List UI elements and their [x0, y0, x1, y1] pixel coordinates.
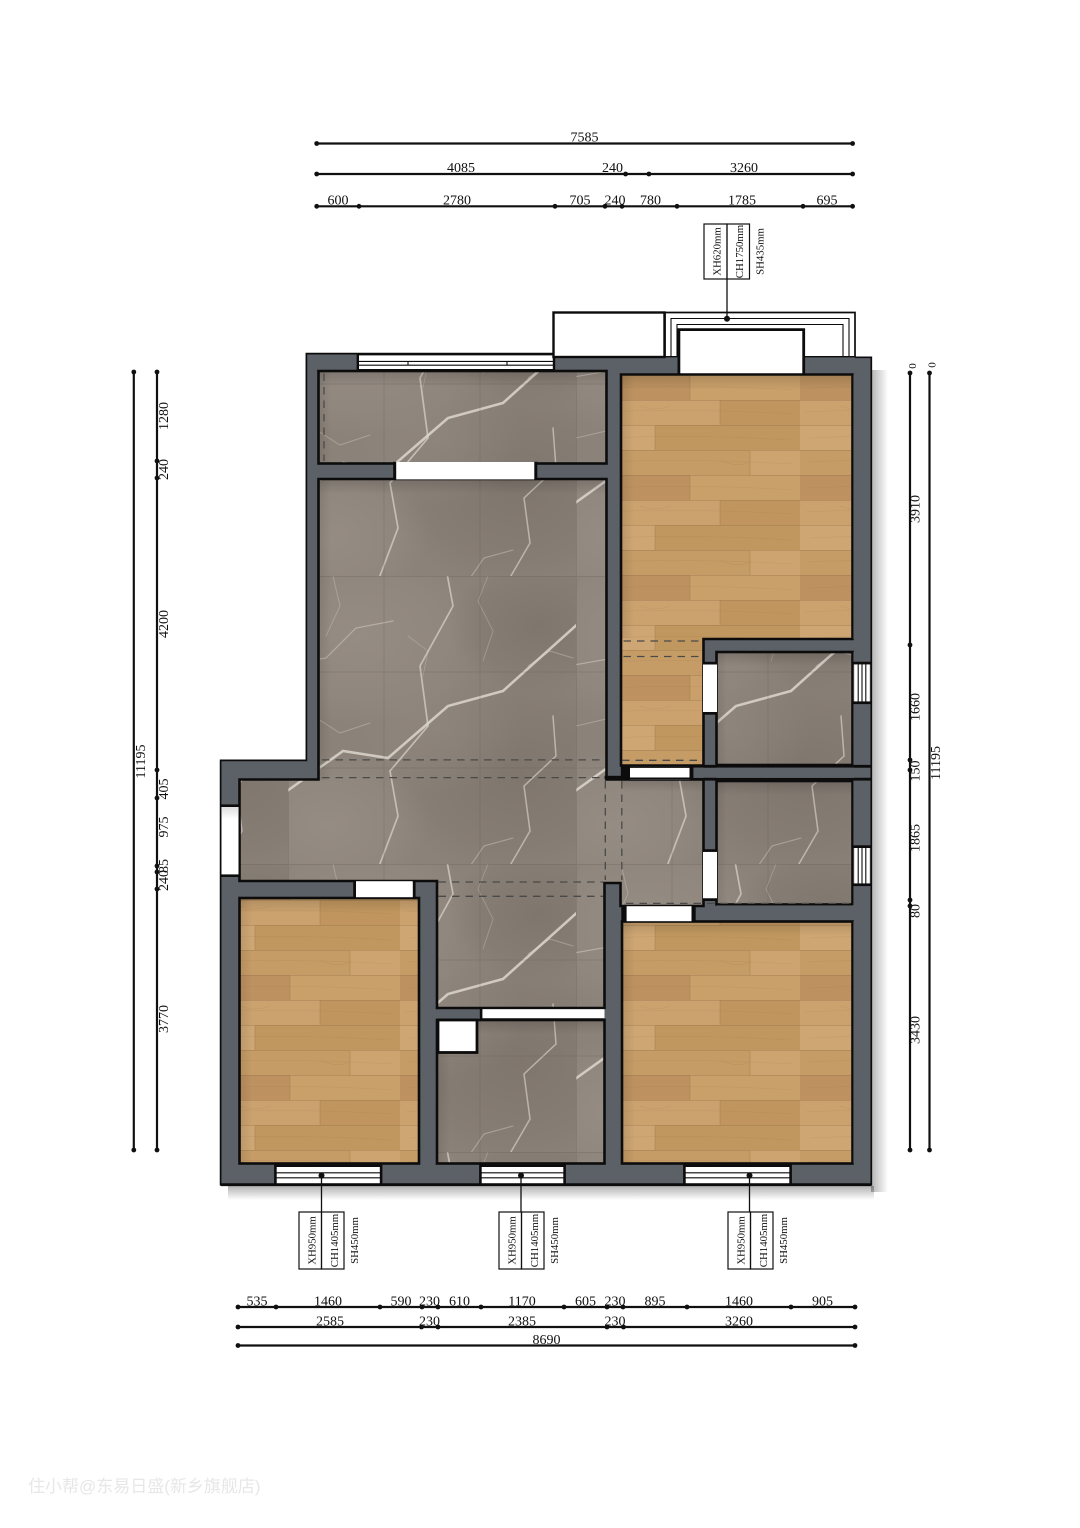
svg-text:SH435mm: SH435mm: [755, 228, 767, 275]
svg-text:3260: 3260: [725, 1315, 753, 1330]
svg-text:3430: 3430: [909, 1016, 924, 1044]
svg-text:80: 80: [909, 904, 924, 918]
svg-text:535: 535: [247, 1295, 268, 1310]
svg-text:780: 780: [640, 193, 661, 208]
svg-text:住小帮@东易日盛(新乡旗舰店): 住小帮@东易日盛(新乡旗舰店): [28, 1477, 261, 1496]
svg-text:2385: 2385: [508, 1315, 536, 1330]
svg-text:1170: 1170: [508, 1295, 535, 1310]
svg-text:XH950mm: XH950mm: [507, 1216, 519, 1265]
svg-text:8690: 8690: [533, 1333, 561, 1348]
svg-text:1660: 1660: [909, 693, 924, 721]
svg-text:240: 240: [602, 161, 623, 176]
svg-text:600: 600: [328, 193, 349, 208]
svg-text:905: 905: [812, 1295, 833, 1310]
svg-text:0: 0: [927, 362, 939, 368]
svg-text:230: 230: [605, 1315, 626, 1330]
svg-text:11195: 11195: [134, 745, 149, 779]
svg-text:SH450mm: SH450mm: [349, 1217, 361, 1264]
svg-text:230: 230: [605, 1295, 626, 1310]
svg-text:2780: 2780: [443, 193, 471, 208]
svg-text:11195: 11195: [929, 746, 944, 780]
svg-text:975: 975: [157, 817, 172, 838]
svg-text:2585: 2585: [316, 1315, 344, 1330]
svg-text:590: 590: [391, 1295, 412, 1310]
svg-text:7585: 7585: [571, 131, 599, 146]
svg-text:605: 605: [575, 1295, 596, 1310]
svg-text:CH1405mm: CH1405mm: [329, 1213, 341, 1267]
svg-text:230: 230: [419, 1295, 440, 1310]
svg-text:1460: 1460: [725, 1295, 753, 1310]
svg-text:CH1750mm: CH1750mm: [734, 224, 746, 278]
svg-text:240: 240: [157, 459, 172, 480]
svg-text:895: 895: [645, 1295, 666, 1310]
svg-text:150: 150: [909, 761, 924, 782]
svg-text:1785: 1785: [728, 193, 756, 208]
svg-text:1460: 1460: [314, 1295, 342, 1310]
svg-text:CH1405mm: CH1405mm: [758, 1213, 770, 1267]
svg-text:CH1405mm: CH1405mm: [529, 1213, 541, 1267]
svg-text:XH950mm: XH950mm: [736, 1216, 748, 1265]
svg-text:0: 0: [907, 363, 919, 369]
svg-text:1865: 1865: [909, 824, 924, 852]
svg-text:695: 695: [817, 193, 838, 208]
svg-text:405: 405: [157, 779, 172, 800]
svg-text:230: 230: [419, 1315, 440, 1330]
svg-text:XH620mm: XH620mm: [712, 227, 724, 276]
svg-text:4085: 4085: [447, 161, 475, 176]
svg-text:610: 610: [449, 1295, 470, 1310]
svg-text:3770: 3770: [157, 1005, 172, 1033]
svg-text:4200: 4200: [157, 610, 172, 638]
svg-text:240: 240: [157, 870, 172, 891]
svg-text:1280: 1280: [157, 402, 172, 430]
svg-text:240: 240: [605, 193, 626, 208]
svg-text:705: 705: [570, 193, 591, 208]
svg-text:SH450mm: SH450mm: [549, 1217, 561, 1264]
svg-text:XH950mm: XH950mm: [307, 1216, 319, 1265]
svg-text:SH450mm: SH450mm: [778, 1217, 790, 1264]
svg-text:3910: 3910: [909, 495, 924, 523]
svg-text:3260: 3260: [730, 161, 758, 176]
